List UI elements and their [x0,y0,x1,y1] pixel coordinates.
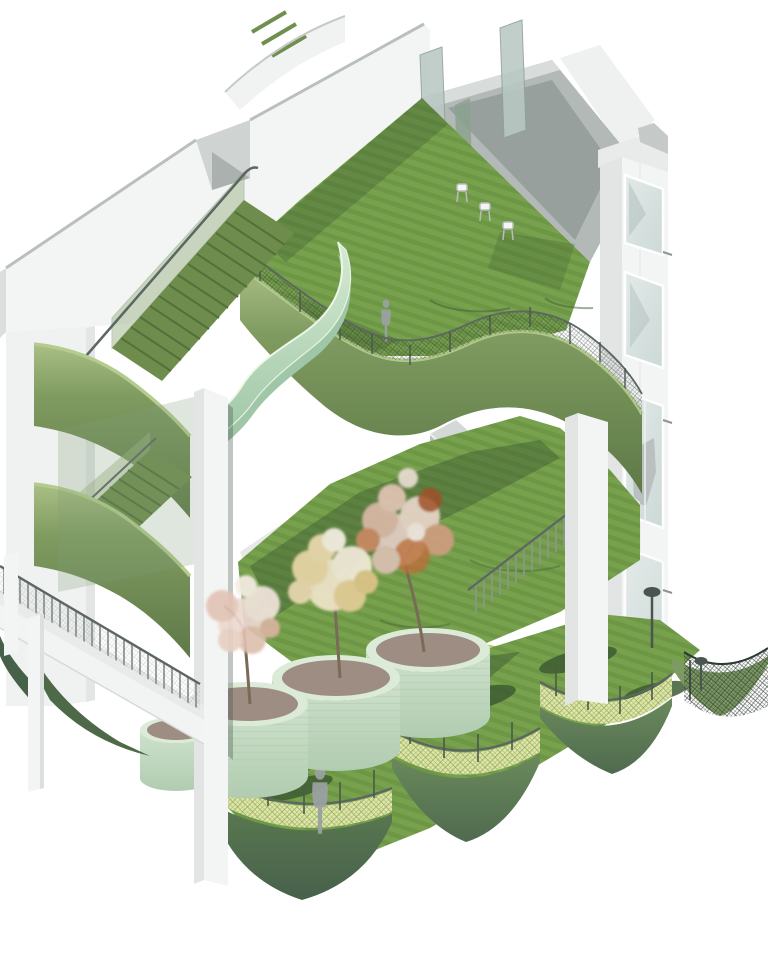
facade-window [625,272,663,368]
axonometric-rendering [0,0,768,965]
right-column [565,413,608,706]
rendering-canvas [0,0,768,965]
facade-window [625,175,663,255]
white-post [4,552,18,656]
glass-fin [500,20,526,138]
